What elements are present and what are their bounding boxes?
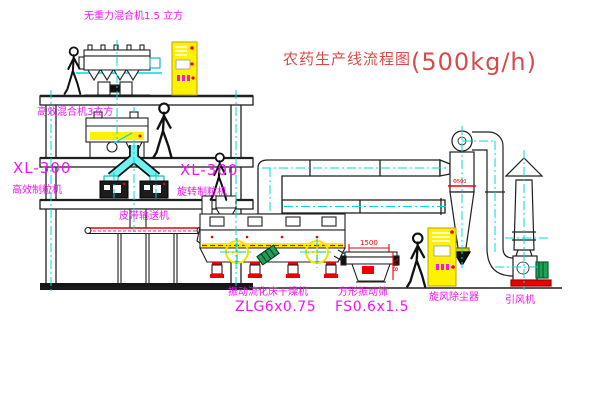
diagram-title: 农药生产线流程图(500kg/h) bbox=[283, 48, 537, 76]
title-capacity: (500kg/h) bbox=[411, 48, 537, 76]
label-left-granulator-name: 高效制粒机 bbox=[12, 186, 62, 197]
label-right-granulator-name: 旋转制粒机 bbox=[177, 188, 227, 199]
cyclone-outlet-pipe bbox=[472, 132, 513, 276]
induced-draft-fan bbox=[511, 256, 551, 286]
label-induced-fan: 引风机 bbox=[505, 296, 535, 307]
title-chinese: 农药生产线流程图 bbox=[283, 50, 411, 68]
top-mixer-machine bbox=[76, 45, 162, 95]
dim-cyclone-band: Φ500 bbox=[453, 179, 466, 185]
label-dryer-name: 振动流化床干燥机 bbox=[228, 288, 308, 299]
label-right-granulator-model: XL-300 bbox=[180, 163, 238, 179]
label-cyclone: 旋风除尘器 bbox=[429, 293, 479, 304]
label-top-mixer: 无重力混合机1.5 立方 bbox=[84, 12, 183, 23]
label-floor-mixer: 高效混合机3立方 bbox=[37, 108, 113, 119]
label-dryer-model: ZLG6x0.75 bbox=[235, 300, 316, 315]
dim-sieve-length: 1500 bbox=[360, 239, 378, 247]
label-sieve-model: FS0.6x1.5 bbox=[335, 300, 409, 315]
flow-diagram-canvas: 农药生产线流程图(500kg/h) 无重力混合机1.5 立方 高效混合机3立方 … bbox=[0, 0, 600, 403]
label-belt-conveyor: 皮带输送机 bbox=[119, 212, 169, 223]
label-sieve-name: 方形振动筛 bbox=[338, 288, 388, 299]
dryer-spring-feet bbox=[210, 262, 338, 278]
dim-sieve-height: 548 bbox=[391, 258, 399, 271]
control-cabinet-top bbox=[172, 42, 197, 95]
label-left-granulator-model: XL-300 bbox=[13, 161, 71, 177]
control-cabinet-ground bbox=[428, 228, 456, 286]
